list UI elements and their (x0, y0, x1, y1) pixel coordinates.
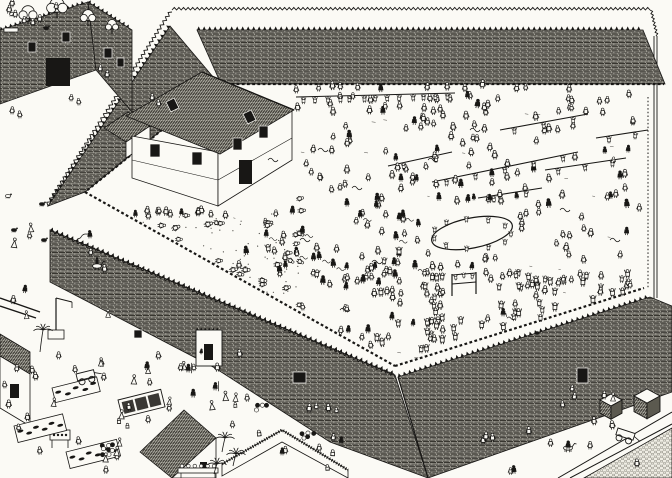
person-figure[interactable] (314, 403, 318, 408)
illustration-stage: Walled courtyard crowd scene (hand-drawn… (0, 0, 672, 478)
ball-prop[interactable] (534, 331, 539, 335)
bench-prop[interactable] (4, 28, 18, 32)
scene-illustration (0, 0, 672, 478)
